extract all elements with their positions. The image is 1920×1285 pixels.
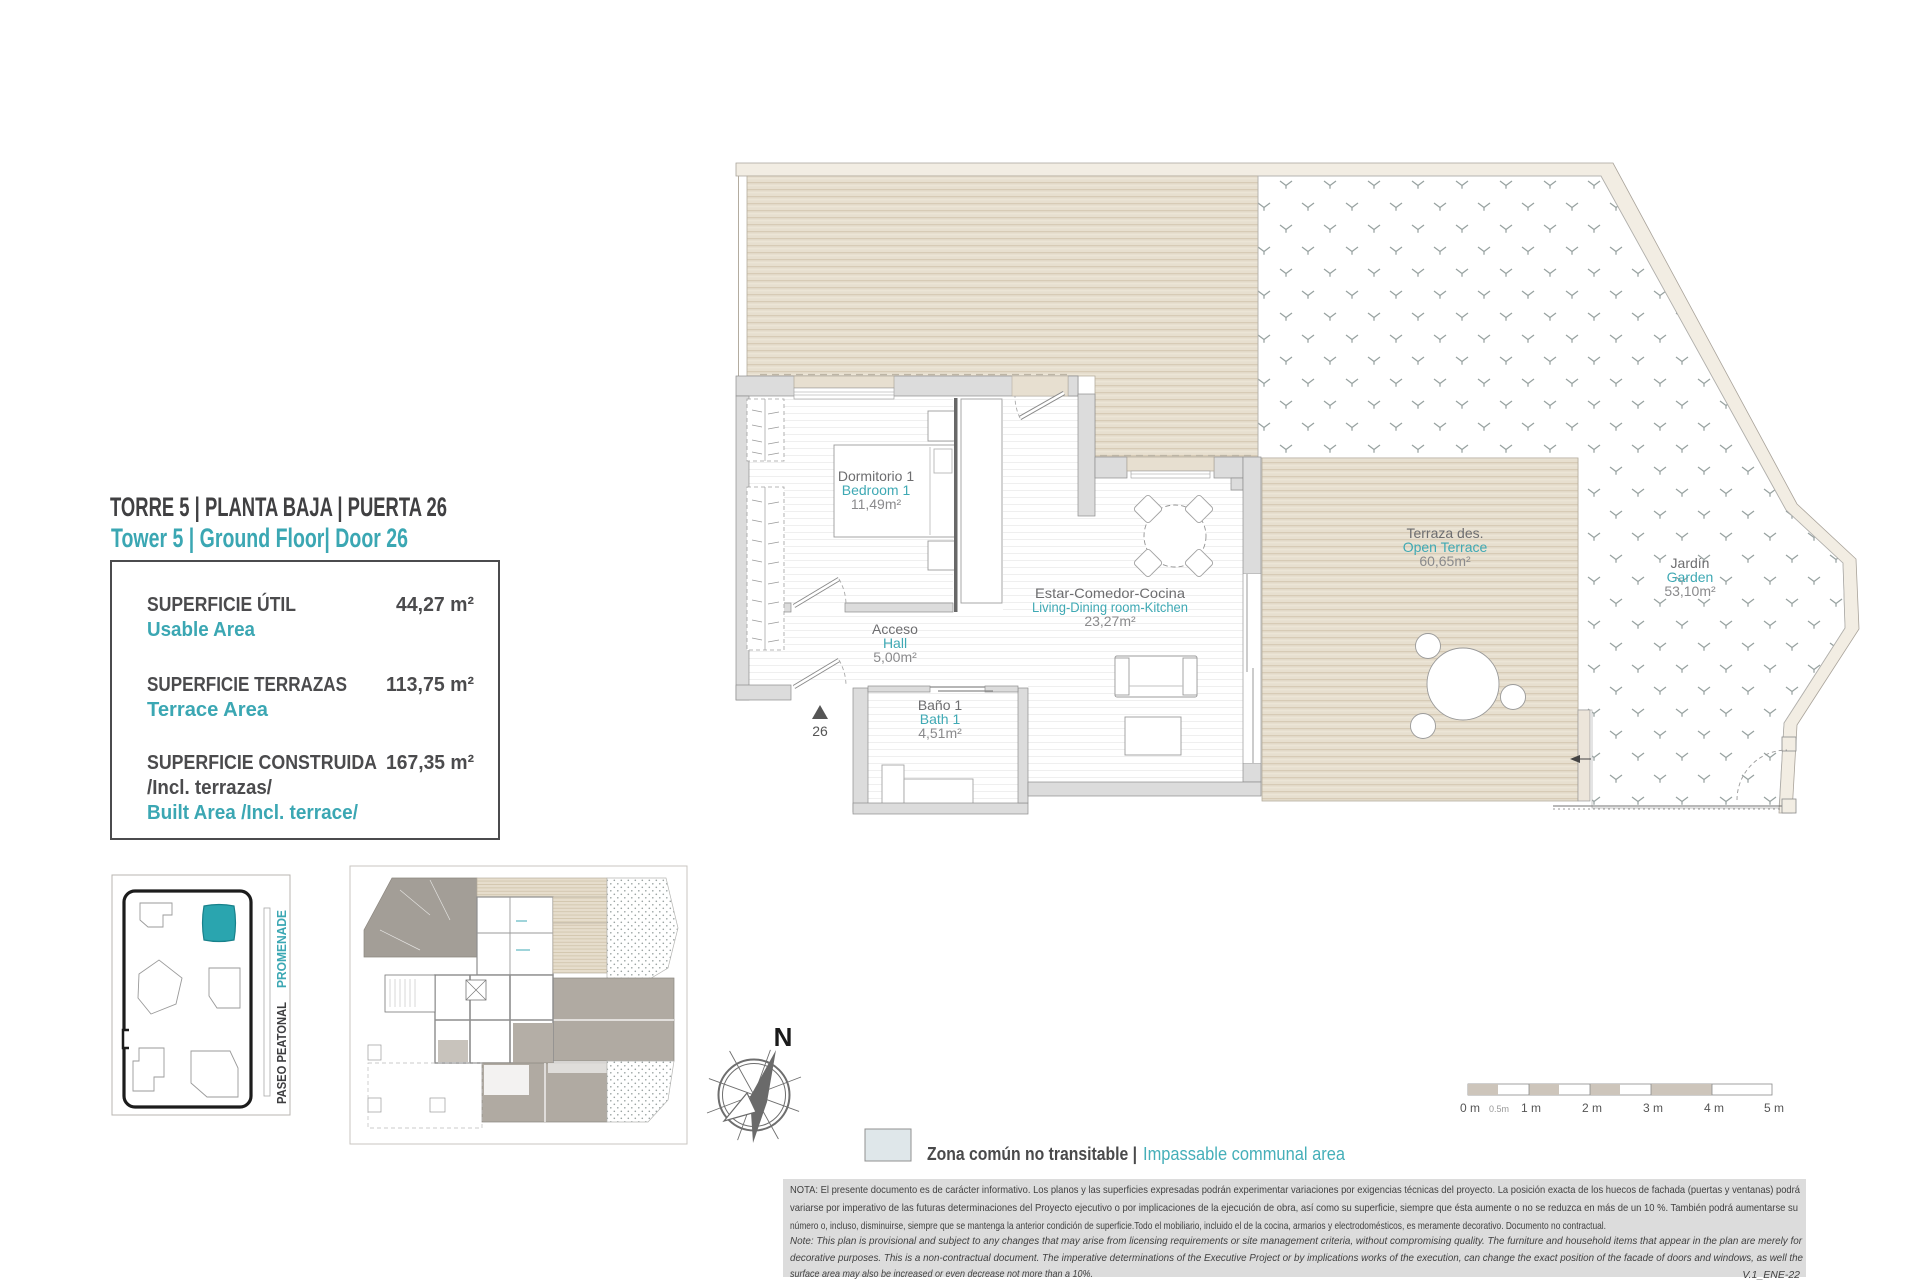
svg-text:60,65m²: 60,65m² [1419,553,1471,569]
svg-text:PASEO PEATONAL: PASEO PEATONAL [274,1002,289,1104]
svg-text:0 m: 0 m [1460,1101,1480,1115]
svg-text:variarse por imperativo de las: variarse por imperativo de las futuras d… [790,1202,1798,1214]
svg-text:Usable Area: Usable Area [147,619,256,641]
svg-text:Impassable communal area: Impassable communal area [1143,1144,1346,1164]
svg-text:Zona común no transitable |: Zona común no transitable | [927,1144,1137,1164]
svg-text:Note: This plan is provisional: Note: This plan is provisional and subje… [790,1235,1802,1247]
svg-text:167,35 m²: 167,35 m² [386,752,474,774]
svg-text:4,51m²: 4,51m² [918,725,962,741]
svg-text:Tower 5 | Ground Floor| Door 2: Tower 5 | Ground Floor| Door 26 [111,523,408,553]
svg-text:decorative purposes. This is a: decorative purposes. This is a non-contr… [790,1252,1803,1264]
svg-text:PROMENADE: PROMENADE [274,910,289,988]
svg-text:Terrace Area: Terrace Area [147,699,269,721]
svg-text:SUPERFICIE ÚTIL: SUPERFICIE ÚTIL [147,592,296,616]
svg-text:V.1_ENE-22: V.1_ENE-22 [1742,1269,1800,1280]
svg-text:26: 26 [812,723,828,739]
svg-text:TORRE 5 | PLANTA BAJA | PUERTA: TORRE 5 | PLANTA BAJA | PUERTA 26 [110,492,447,522]
svg-text:/Incl. terrazas/: /Incl. terrazas/ [147,777,272,799]
svg-text:11,49m²: 11,49m² [851,496,902,512]
svg-text:SUPERFICIE CONSTRUIDA: SUPERFICIE CONSTRUIDA [147,752,377,774]
svg-text:surface area may also be incre: surface area may also be increased or ev… [790,1268,1093,1280]
svg-text:113,75 m²: 113,75 m² [386,674,474,696]
svg-text:NOTA: El presente documento e: NOTA: El presente documento es de caráct… [790,1184,1800,1196]
svg-text:Built Area /Incl. terrace/: Built Area /Incl. terrace/ [147,802,358,824]
svg-text:2 m: 2 m [1582,1101,1602,1115]
svg-text:44,27 m²: 44,27 m² [396,594,474,616]
svg-text:0.5m: 0.5m [1489,1104,1509,1114]
svg-text:5,00m²: 5,00m² [873,649,917,665]
svg-text:3 m: 3 m [1643,1101,1663,1115]
svg-text:N: N [774,1022,793,1052]
svg-text:53,10m²: 53,10m² [1664,583,1716,599]
svg-text:SUPERFICIE TERRAZAS: SUPERFICIE TERRAZAS [147,674,347,696]
svg-text:5 m: 5 m [1764,1101,1784,1115]
svg-text:4 m: 4 m [1704,1101,1724,1115]
svg-text:1 m: 1 m [1521,1101,1541,1115]
svg-text:23,27m²: 23,27m² [1084,613,1136,629]
svg-text:número o, incluso, disminuirse: número o, incluso, disminuirse, siempre … [790,1220,1606,1232]
